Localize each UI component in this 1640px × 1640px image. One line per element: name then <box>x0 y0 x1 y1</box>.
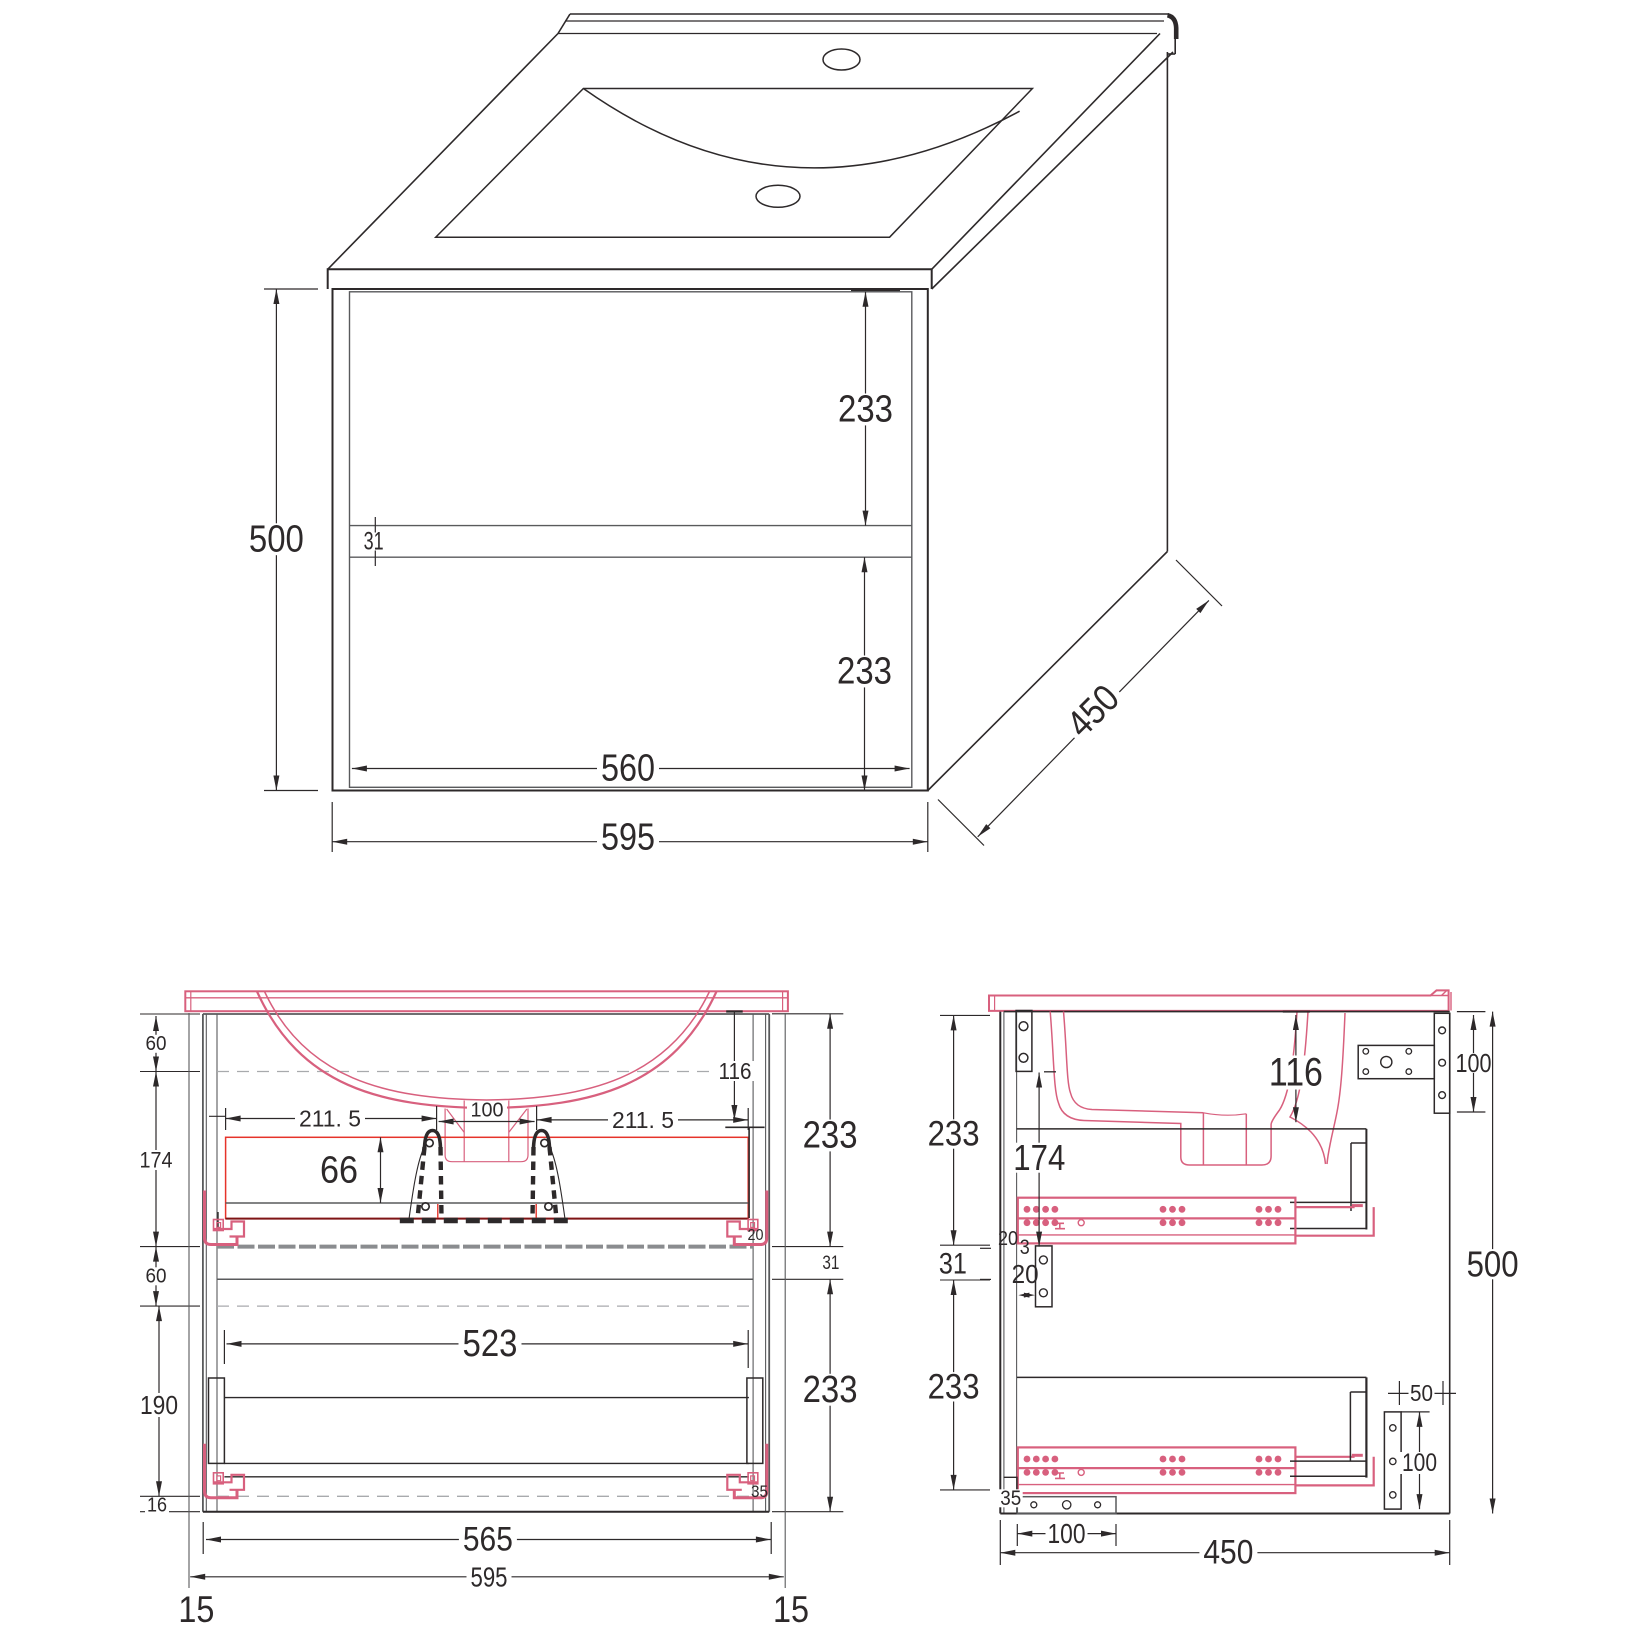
svg-text:20: 20 <box>1012 1259 1039 1289</box>
svg-text:15: 15 <box>178 1589 214 1630</box>
svg-text:174: 174 <box>1013 1137 1065 1178</box>
svg-text:66: 66 <box>320 1150 358 1192</box>
svg-text:31: 31 <box>822 1253 839 1274</box>
svg-text:233: 233 <box>803 1369 858 1411</box>
svg-text:31: 31 <box>364 528 384 556</box>
svg-text:233: 233 <box>928 1367 980 1406</box>
svg-text:35: 35 <box>1000 1487 1021 1510</box>
svg-text:565: 565 <box>463 1521 513 1559</box>
svg-text:35: 35 <box>751 1482 768 1501</box>
svg-text:31: 31 <box>939 1247 967 1280</box>
svg-text:116: 116 <box>719 1058 752 1084</box>
svg-text:595: 595 <box>471 1561 508 1592</box>
svg-text:100: 100 <box>1048 1518 1086 1549</box>
svg-text:15: 15 <box>773 1589 809 1630</box>
svg-text:233: 233 <box>803 1115 858 1157</box>
svg-text:233: 233 <box>837 651 892 693</box>
svg-text:3: 3 <box>1020 1236 1030 1259</box>
svg-text:500: 500 <box>1467 1244 1519 1285</box>
svg-text:190: 190 <box>140 1390 178 1420</box>
svg-text:50: 50 <box>1410 1380 1433 1406</box>
svg-text:174: 174 <box>140 1148 173 1173</box>
svg-text:211. 5: 211. 5 <box>612 1107 674 1133</box>
svg-text:560: 560 <box>601 748 655 790</box>
svg-text:100: 100 <box>471 1100 504 1122</box>
svg-text:450: 450 <box>1203 1534 1253 1572</box>
svg-text:116: 116 <box>1269 1051 1323 1095</box>
svg-text:523: 523 <box>463 1323 518 1365</box>
svg-text:20: 20 <box>748 1227 764 1244</box>
svg-text:233: 233 <box>838 389 893 431</box>
svg-text:100: 100 <box>1456 1048 1492 1078</box>
svg-text:20: 20 <box>998 1228 1018 1250</box>
svg-text:100: 100 <box>1402 1449 1437 1477</box>
svg-text:60: 60 <box>146 1033 167 1055</box>
svg-text:16: 16 <box>147 1495 167 1517</box>
svg-text:595: 595 <box>601 817 655 859</box>
svg-text:211. 5: 211. 5 <box>299 1106 361 1132</box>
svg-text:500: 500 <box>249 518 304 560</box>
svg-text:233: 233 <box>928 1115 980 1154</box>
svg-text:60: 60 <box>146 1265 167 1287</box>
